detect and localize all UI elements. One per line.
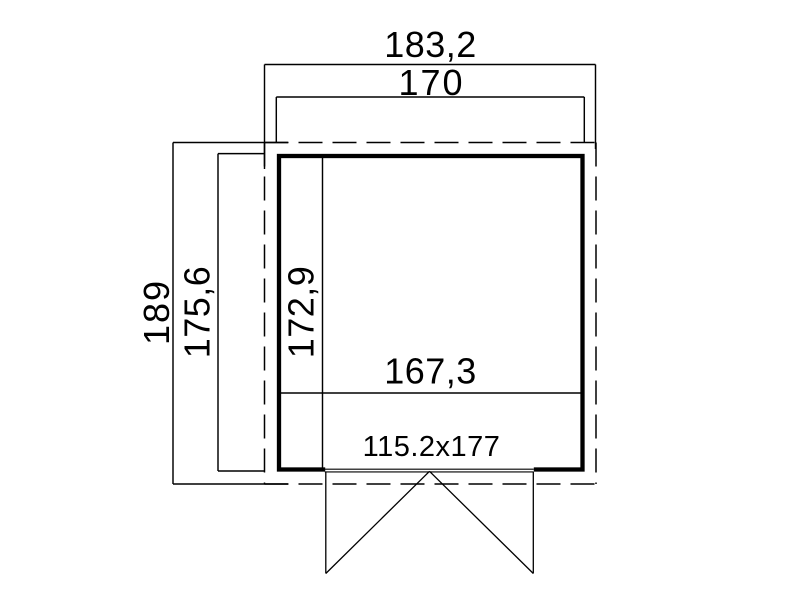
- svg-text:175,6: 175,6: [177, 266, 218, 359]
- svg-text:170: 170: [398, 62, 464, 103]
- svg-text:172,9: 172,9: [281, 266, 322, 359]
- svg-text:189: 189: [136, 279, 177, 345]
- svg-text:183,2: 183,2: [384, 24, 477, 65]
- svg-text:167,3: 167,3: [384, 351, 477, 392]
- svg-text:115.2x177: 115.2x177: [363, 431, 501, 463]
